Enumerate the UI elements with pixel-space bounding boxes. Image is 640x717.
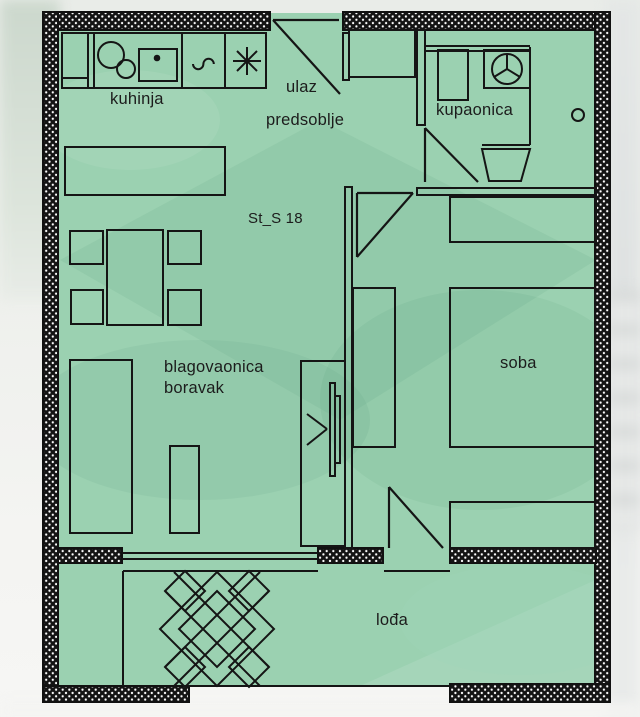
floorplan-svg (0, 0, 640, 717)
faucet-dot-icon (155, 56, 160, 61)
wall-top-right (343, 12, 610, 30)
wall-right (595, 12, 610, 702)
label-blagovaonica: blagovaonica (164, 358, 264, 377)
label-ulaz: ulaz (286, 78, 317, 97)
wall-left (43, 12, 58, 702)
wall-top-left (43, 12, 270, 30)
label-kuhinja: kuhinja (110, 90, 164, 109)
label-kupaonica: kupaonica (436, 101, 513, 120)
label-predsoblje: predsoblje (266, 111, 344, 130)
label-boravak: boravak (164, 379, 224, 398)
label-unit-number: St_S 18 (248, 209, 303, 228)
wall-mid-2 (318, 548, 383, 563)
label-lodja: lođa (376, 611, 408, 630)
hob-asterisk-icon (233, 47, 261, 75)
wall-bottom-left (43, 686, 189, 702)
label-soba: soba (500, 354, 537, 373)
floorplan-page: kuhinja ulaz predsoblje St_S 18 kupaonic… (0, 0, 640, 717)
wall-mid-1 (58, 548, 122, 563)
wall-bottom-right (450, 684, 610, 702)
wall-mid-3 (450, 548, 596, 563)
